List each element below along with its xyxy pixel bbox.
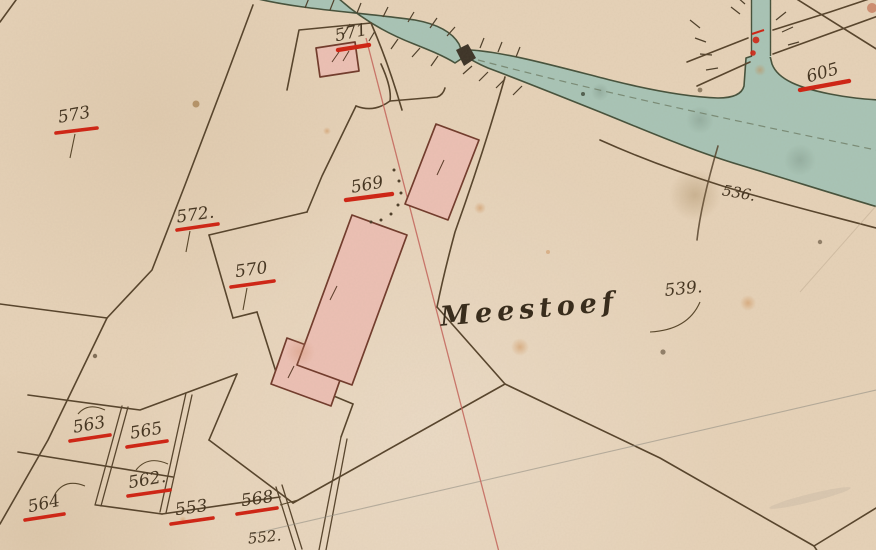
parcel-label-539: 539. [664, 277, 704, 301]
map-canvas: 573 572. 570 571 569 605 536. 539. 563 5… [0, 0, 876, 550]
side-channel [751, 0, 771, 57]
parcel-label-552: 552. [247, 526, 282, 547]
cadastral-map: 573 572. 570 571 569 605 536. 539. 563 5… [0, 0, 876, 550]
